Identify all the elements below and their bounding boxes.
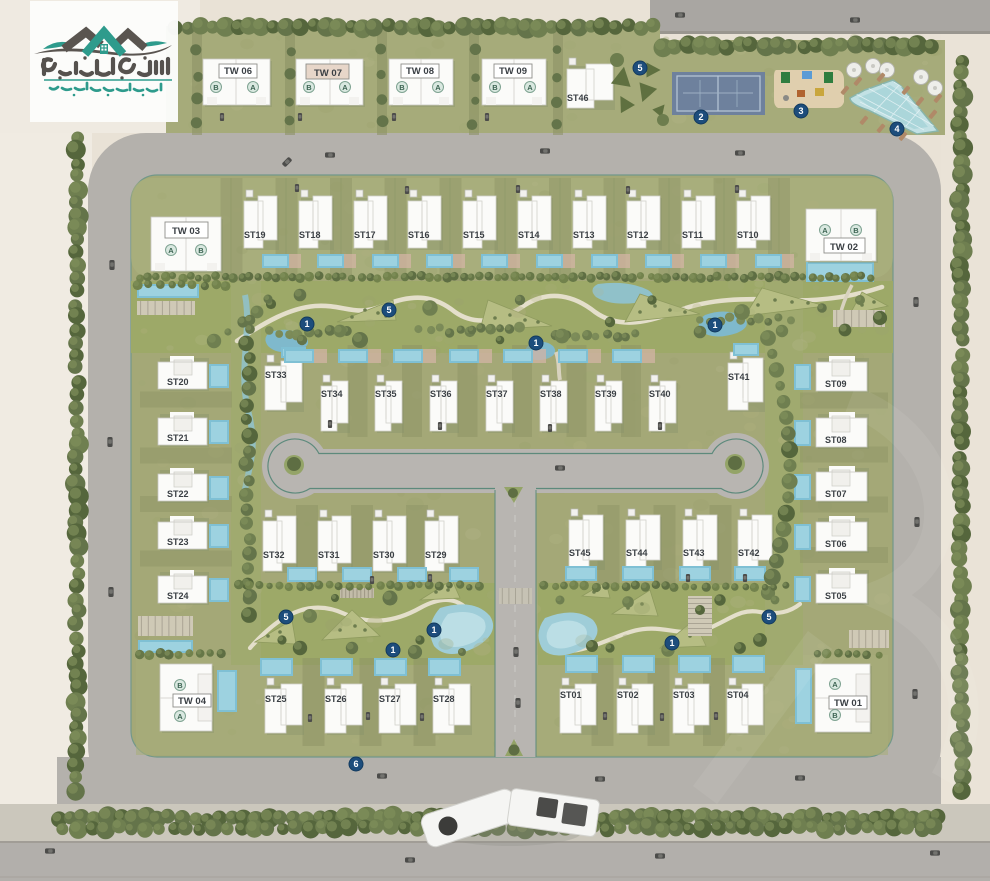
- svg-text:TW 09: TW 09: [499, 66, 527, 77]
- svg-text:ST39: ST39: [595, 389, 617, 399]
- svg-text:ST22: ST22: [167, 489, 189, 499]
- svg-text:ST34: ST34: [321, 389, 343, 399]
- svg-text:ST27: ST27: [379, 694, 401, 704]
- svg-text:ST42: ST42: [738, 548, 760, 558]
- svg-text:ST36: ST36: [430, 389, 452, 399]
- svg-text:A: A: [527, 83, 533, 92]
- svg-text:ST15: ST15: [463, 230, 485, 240]
- svg-text:ST29: ST29: [425, 550, 447, 560]
- svg-text:1: 1: [431, 625, 436, 635]
- svg-text:ST05: ST05: [825, 591, 847, 601]
- svg-text:5: 5: [766, 612, 771, 622]
- svg-text:ST32: ST32: [263, 550, 285, 560]
- svg-text:TW 01: TW 01: [834, 698, 863, 709]
- svg-text:ST24: ST24: [167, 591, 189, 601]
- svg-text:ST46: ST46: [567, 93, 589, 103]
- svg-text:2: 2: [698, 112, 703, 122]
- svg-text:1: 1: [669, 638, 674, 648]
- svg-text:ST35: ST35: [375, 389, 397, 399]
- svg-text:ST25: ST25: [265, 694, 287, 704]
- svg-text:ST20: ST20: [167, 377, 189, 387]
- svg-text:ST28: ST28: [433, 694, 455, 704]
- svg-text:ST43: ST43: [683, 548, 705, 558]
- svg-text:ST26: ST26: [325, 694, 347, 704]
- svg-text:TW 08: TW 08: [406, 66, 434, 77]
- svg-text:ST33: ST33: [265, 370, 287, 380]
- svg-text:ST31: ST31: [318, 550, 340, 560]
- svg-text:A: A: [435, 83, 441, 92]
- svg-text:TW 03: TW 03: [172, 226, 200, 237]
- svg-text:ST03: ST03: [673, 690, 695, 700]
- svg-text:ST30: ST30: [373, 550, 395, 560]
- svg-text:ST10: ST10: [737, 230, 759, 240]
- svg-text:4: 4: [894, 124, 899, 134]
- svg-text:5: 5: [637, 63, 642, 73]
- svg-text:ST37: ST37: [486, 389, 508, 399]
- svg-text:ST13: ST13: [573, 230, 595, 240]
- svg-text:ST23: ST23: [167, 537, 189, 547]
- svg-text:5: 5: [386, 305, 391, 315]
- svg-text:A: A: [822, 226, 828, 235]
- svg-text:ST09: ST09: [825, 379, 847, 389]
- svg-text:ST08: ST08: [825, 435, 847, 445]
- svg-text:A: A: [168, 246, 174, 255]
- svg-text:ST07: ST07: [825, 489, 847, 499]
- svg-text:ST01: ST01: [560, 690, 582, 700]
- svg-text:B: B: [306, 83, 312, 92]
- svg-text:TW 06: TW 06: [224, 66, 252, 77]
- svg-text:ST18: ST18: [299, 230, 321, 240]
- svg-text:ST19: ST19: [244, 230, 266, 240]
- svg-text:1: 1: [390, 645, 395, 655]
- svg-text:5: 5: [283, 612, 288, 622]
- svg-text:ST11: ST11: [682, 230, 703, 240]
- svg-text:ST41: ST41: [728, 372, 750, 382]
- svg-text:B: B: [832, 711, 838, 720]
- svg-text:A: A: [342, 83, 348, 92]
- svg-text:B: B: [213, 83, 219, 92]
- svg-text:B: B: [198, 246, 204, 255]
- svg-text:A: A: [250, 83, 256, 92]
- svg-text:ST06: ST06: [825, 539, 847, 549]
- svg-text:TW 04: TW 04: [178, 696, 207, 707]
- svg-text:1: 1: [304, 319, 309, 329]
- svg-text:ST44: ST44: [626, 548, 648, 558]
- svg-text:ST21: ST21: [167, 433, 189, 443]
- svg-text:1: 1: [533, 338, 538, 348]
- svg-text:A: A: [832, 680, 838, 689]
- svg-text:ST02: ST02: [617, 690, 639, 700]
- svg-text:A: A: [177, 712, 183, 721]
- svg-text:ST40: ST40: [649, 389, 671, 399]
- svg-text:B: B: [399, 83, 405, 92]
- svg-text:ST17: ST17: [354, 230, 376, 240]
- svg-text:TW 07: TW 07: [314, 68, 342, 79]
- svg-text:ST12: ST12: [627, 230, 649, 240]
- svg-text:ST04: ST04: [727, 690, 749, 700]
- svg-text:ST14: ST14: [518, 230, 540, 240]
- svg-text:3: 3: [798, 106, 803, 116]
- svg-text:ST45: ST45: [569, 548, 591, 558]
- svg-text:B: B: [177, 681, 183, 690]
- svg-text:B: B: [492, 83, 498, 92]
- svg-text:1: 1: [712, 320, 717, 330]
- svg-text:6: 6: [353, 759, 358, 769]
- svg-text:TW 02: TW 02: [830, 242, 858, 253]
- svg-text:B: B: [853, 226, 859, 235]
- svg-text:ST38: ST38: [540, 389, 562, 399]
- svg-text:ST16: ST16: [408, 230, 430, 240]
